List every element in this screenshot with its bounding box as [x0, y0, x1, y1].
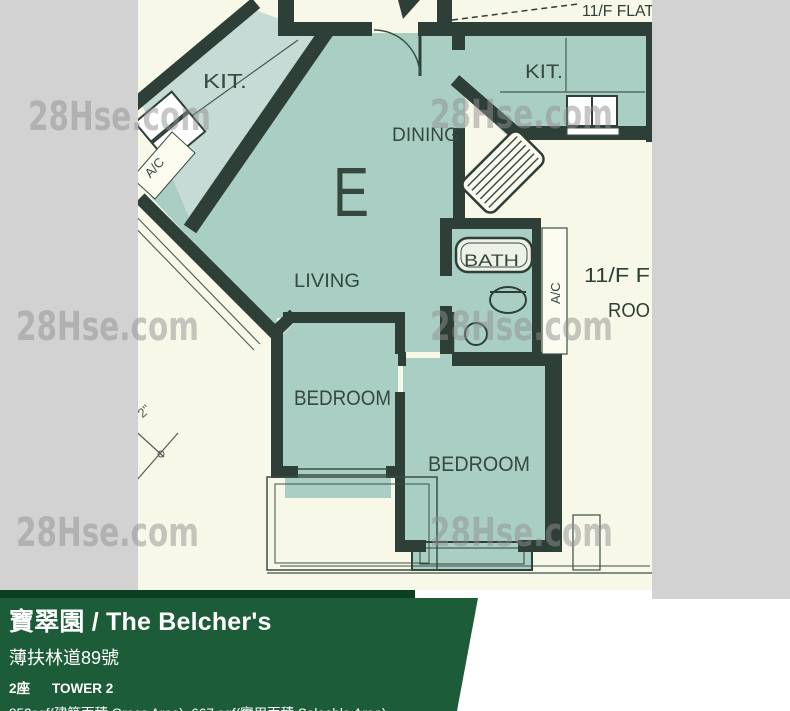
- watermark-6: 28Hse.com: [430, 510, 613, 556]
- kitchen-door-stub: [452, 36, 465, 50]
- estate-address: 薄扶林道89號: [9, 644, 478, 670]
- label-bedroom2: BEDROOM: [428, 453, 530, 476]
- top-wall-stub2: [437, 0, 452, 22]
- tower-zh: 2座: [9, 681, 30, 696]
- estate-title: 寶翠園 / The Belcher's: [9, 602, 478, 638]
- estate-info-panel: 寶翠園 / The Belcher's 薄扶林道89號 2座TOWER 2 85…: [0, 598, 478, 711]
- label-flatroof-2: ROO: [608, 300, 650, 322]
- kitchen-right-wall: [646, 30, 652, 142]
- bedroom2-top-wall: [452, 352, 548, 366]
- label-ac-right: A/C: [548, 282, 563, 304]
- bedroom2-top-stub: [398, 352, 406, 366]
- gray-notch: [652, 590, 790, 599]
- top-wall-right: [418, 22, 652, 36]
- label-kit-right: KIT.: [525, 62, 563, 83]
- floor-plan-drawing: KIT. KIT. DINING E LIVING BATH BEDROOM B…: [0, 0, 790, 590]
- watermark-2: 28Hse.com: [430, 92, 613, 138]
- info-bar-accent-strip: [0, 590, 415, 598]
- bedroom1-left-wall: [271, 330, 283, 478]
- label-bedroom1: BEDROOM: [294, 387, 391, 410]
- label-flat-top: 11/F FLAT: [582, 3, 654, 20]
- left-gray-margin: [0, 0, 138, 590]
- bedroom1-bottom-left: [271, 466, 298, 478]
- label-flatroof-1: 11/F F: [584, 265, 650, 287]
- watermark-1: 28Hse.com: [28, 94, 211, 140]
- watermark-4: 28Hse.com: [430, 304, 613, 350]
- watermark-5: 28Hse.com: [16, 510, 199, 556]
- bedroom2-bottom-left: [398, 540, 426, 552]
- bedroom1-baywindow-sill: [285, 466, 391, 498]
- floor-plan-page: KIT. KIT. DINING E LIVING BATH BEDROOM B…: [0, 0, 790, 711]
- bedroom1-bottom-right: [386, 466, 402, 478]
- tower-line: 2座TOWER 2: [9, 677, 478, 697]
- area-line: 852sqf(建築面積 Gross Area), 667 sqf(實用面積 Sa…: [9, 702, 478, 711]
- bedroom1-top-wall: [283, 312, 401, 323]
- top-wall-stub1: [278, 0, 294, 24]
- label-kit-left: KIT.: [203, 71, 247, 93]
- right-gray-margin: [652, 0, 790, 590]
- info-bar: 寶翠園 / The Belcher's 薄扶林道89號 2座TOWER 2 85…: [0, 590, 790, 711]
- bath-left-wall-upper: [440, 218, 452, 276]
- bath-top-wall: [452, 218, 540, 229]
- tower-en: TOWER 2: [52, 681, 113, 696]
- label-unit-e: E: [333, 153, 369, 231]
- watermark-3: 28Hse.com: [16, 304, 199, 350]
- label-bath: BATH: [464, 251, 519, 270]
- label-living: LIVING: [294, 271, 360, 292]
- top-wall-left: [278, 22, 372, 36]
